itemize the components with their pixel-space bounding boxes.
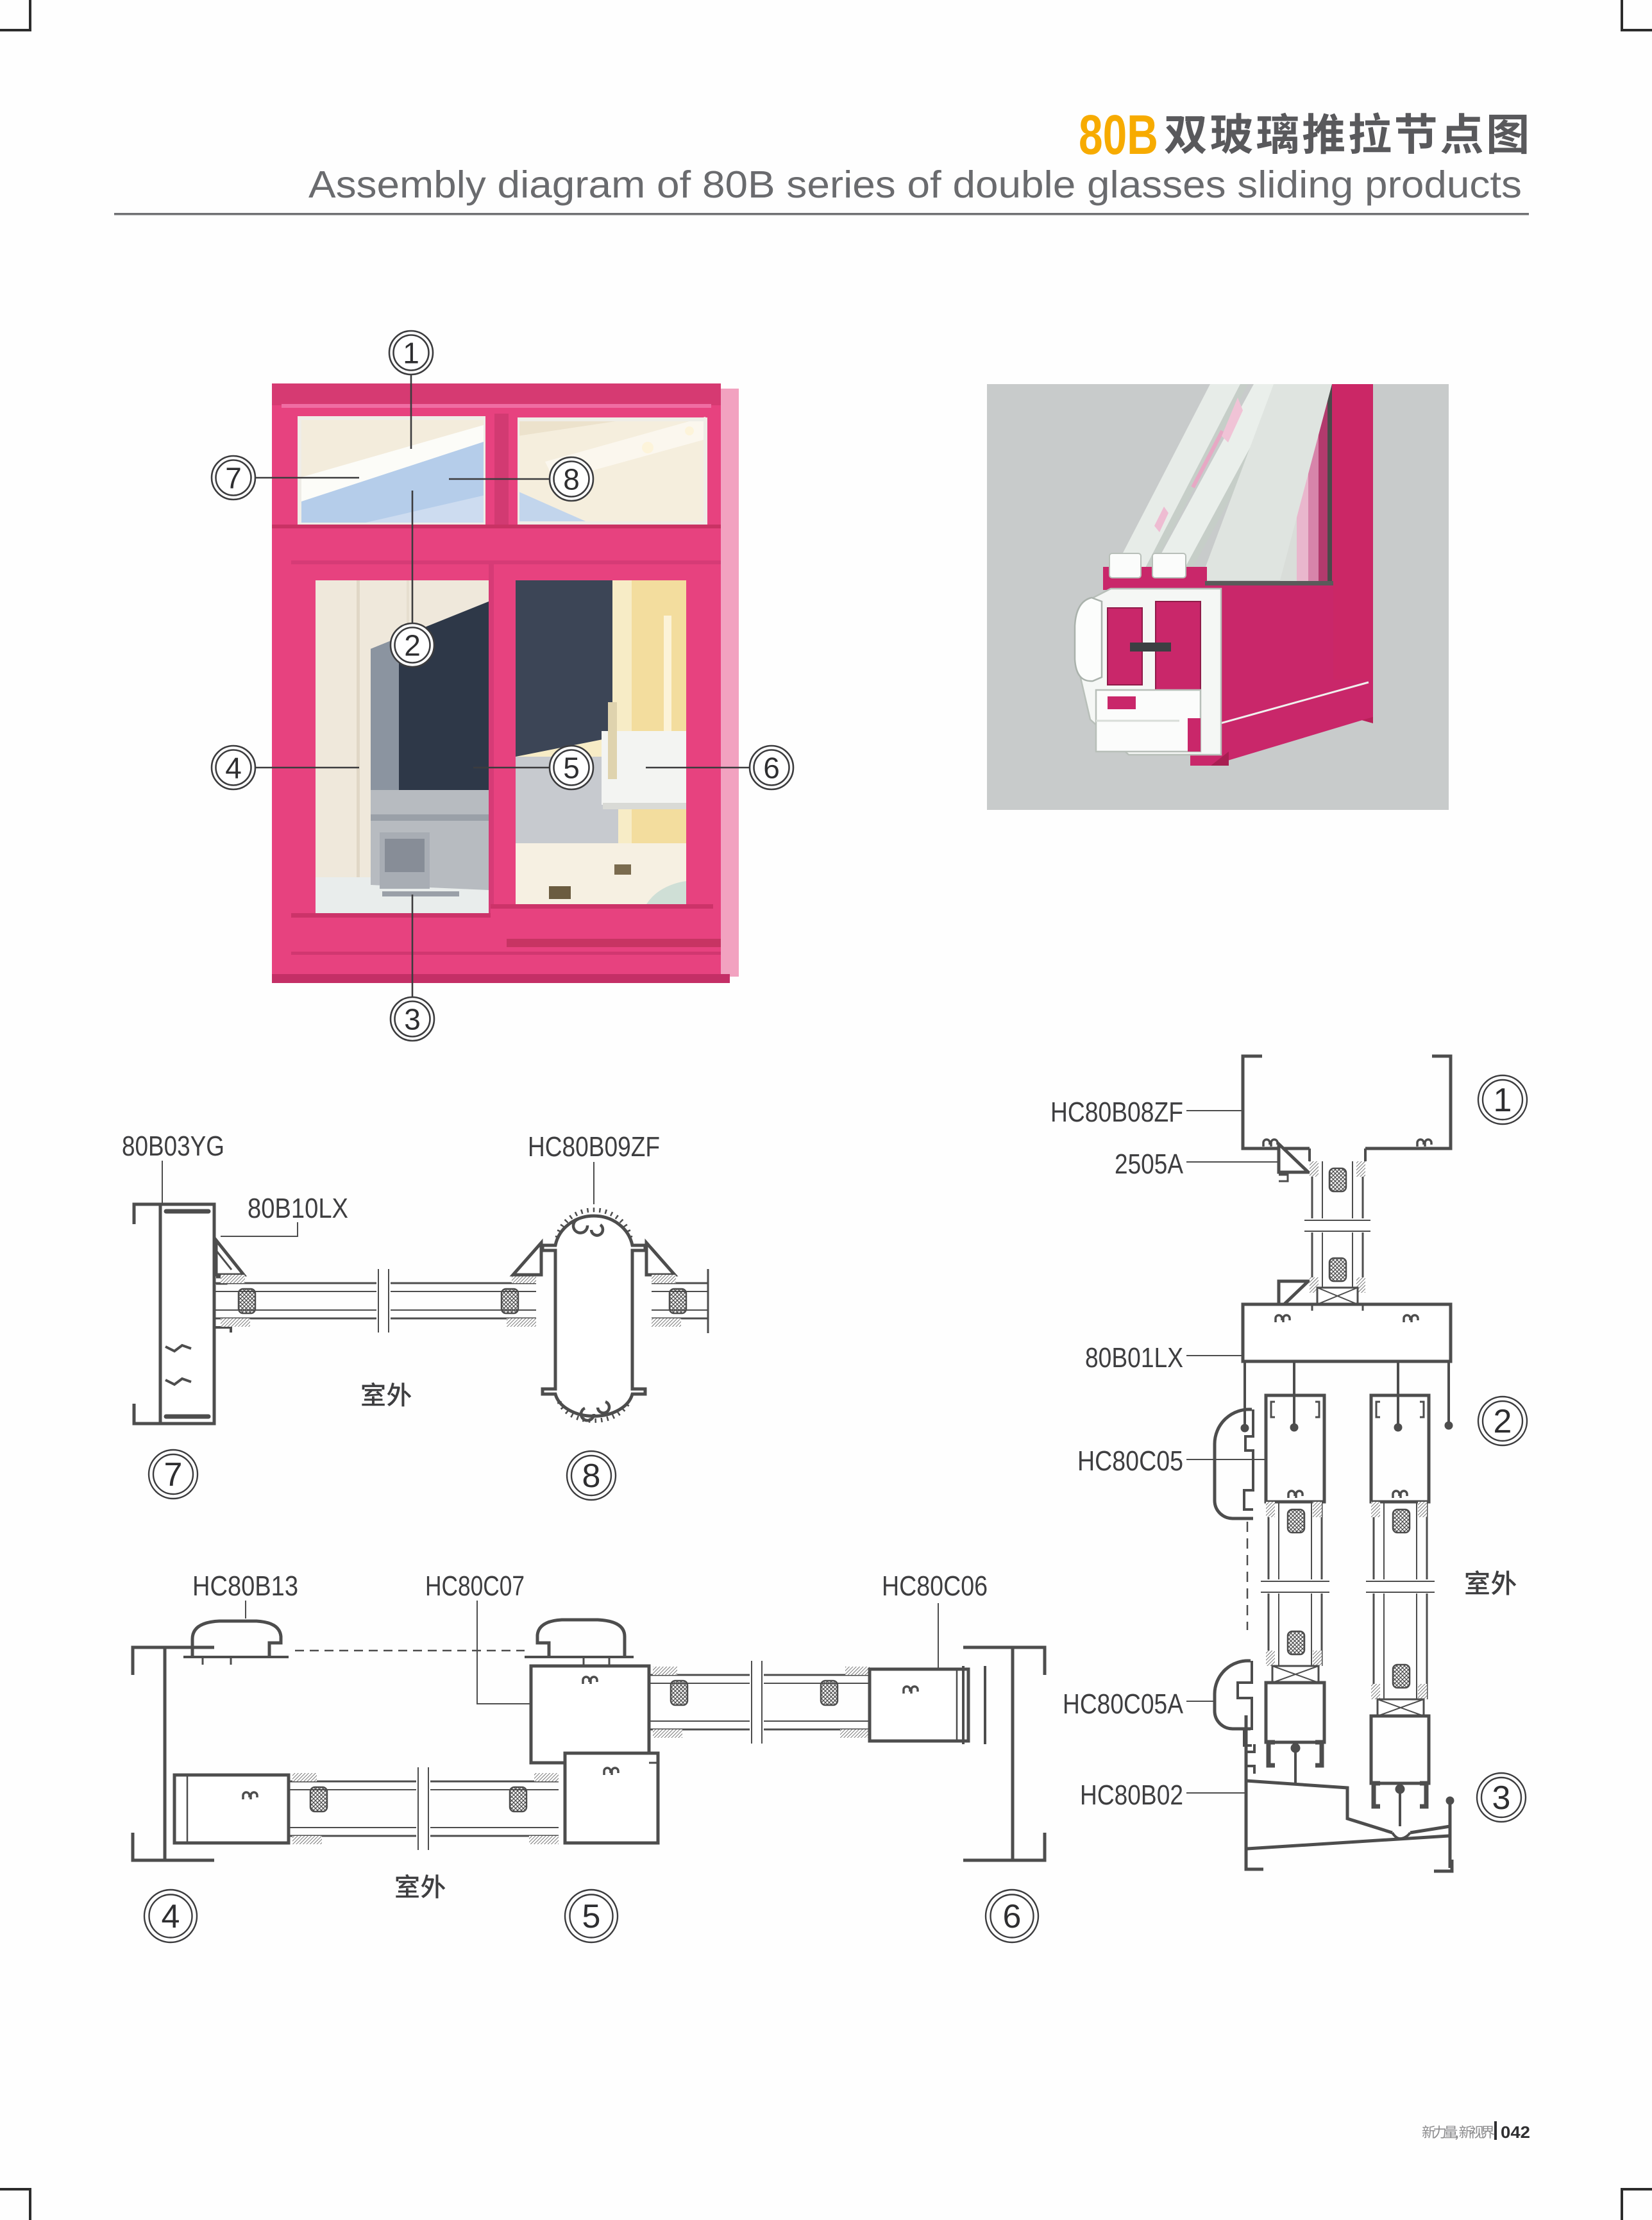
- svg-text:1: 1: [403, 336, 419, 369]
- svg-text:042: 042: [1501, 2123, 1530, 2142]
- svg-text:5: 5: [582, 1898, 601, 1935]
- svg-text:7: 7: [164, 1456, 183, 1493]
- svg-text:5: 5: [563, 751, 580, 784]
- svg-text:Assembly diagram of 80B series: Assembly diagram of 80B series of double…: [308, 164, 1522, 206]
- svg-text:7: 7: [225, 461, 242, 494]
- svg-text:6: 6: [1003, 1898, 1022, 1935]
- svg-text:HC80B02: HC80B02: [1080, 1779, 1183, 1811]
- svg-text:80B01LX: 80B01LX: [1085, 1342, 1183, 1374]
- svg-text:80B: 80B: [1079, 104, 1158, 166]
- svg-text:80B03YG: 80B03YG: [122, 1131, 224, 1162]
- svg-text:8: 8: [582, 1458, 601, 1495]
- svg-text:HC80B13: HC80B13: [192, 1570, 298, 1602]
- svg-text:HC80C05: HC80C05: [1077, 1445, 1183, 1477]
- svg-text:HC80C07: HC80C07: [425, 1570, 525, 1602]
- svg-text:2: 2: [404, 628, 421, 662]
- svg-text:4: 4: [162, 1898, 180, 1935]
- svg-text:2505A: 2505A: [1115, 1148, 1184, 1180]
- svg-text:3: 3: [1492, 1779, 1511, 1817]
- svg-text:HC80B08ZF: HC80B08ZF: [1050, 1097, 1183, 1128]
- svg-text:6: 6: [763, 751, 780, 784]
- svg-text:4: 4: [225, 751, 242, 784]
- svg-text:HC80B09ZF: HC80B09ZF: [528, 1131, 660, 1163]
- svg-text:1: 1: [1494, 1082, 1512, 1119]
- svg-text:80B10LX: 80B10LX: [248, 1193, 348, 1224]
- svg-text:3: 3: [404, 1002, 421, 1036]
- svg-text:2: 2: [1494, 1403, 1512, 1440]
- svg-text:8: 8: [563, 462, 580, 496]
- svg-text:HC80C05A: HC80C05A: [1063, 1688, 1184, 1720]
- svg-text:HC80C06: HC80C06: [882, 1570, 988, 1602]
